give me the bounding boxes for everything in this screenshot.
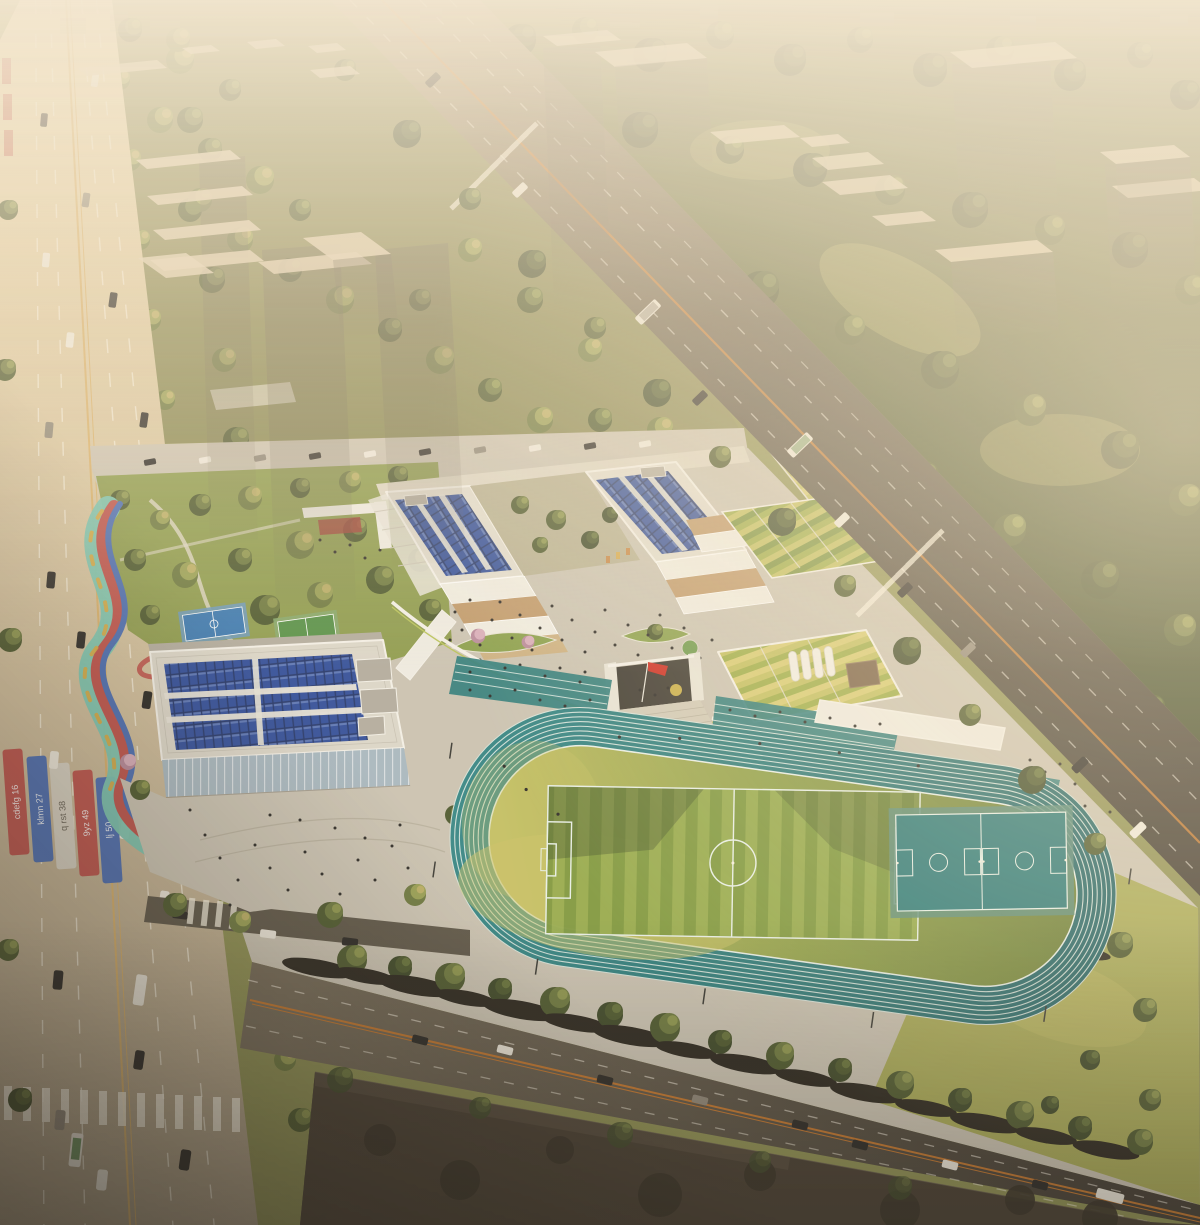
aerial-rendering: cdefg 16 klmn 27 q rst 38 9yz 49 lj 50	[0, 0, 1200, 1225]
atmosphere-overlays	[0, 0, 1200, 1225]
rendering-canvas: cdefg 16 klmn 27 q rst 38 9yz 49 lj 50	[0, 0, 1200, 1225]
